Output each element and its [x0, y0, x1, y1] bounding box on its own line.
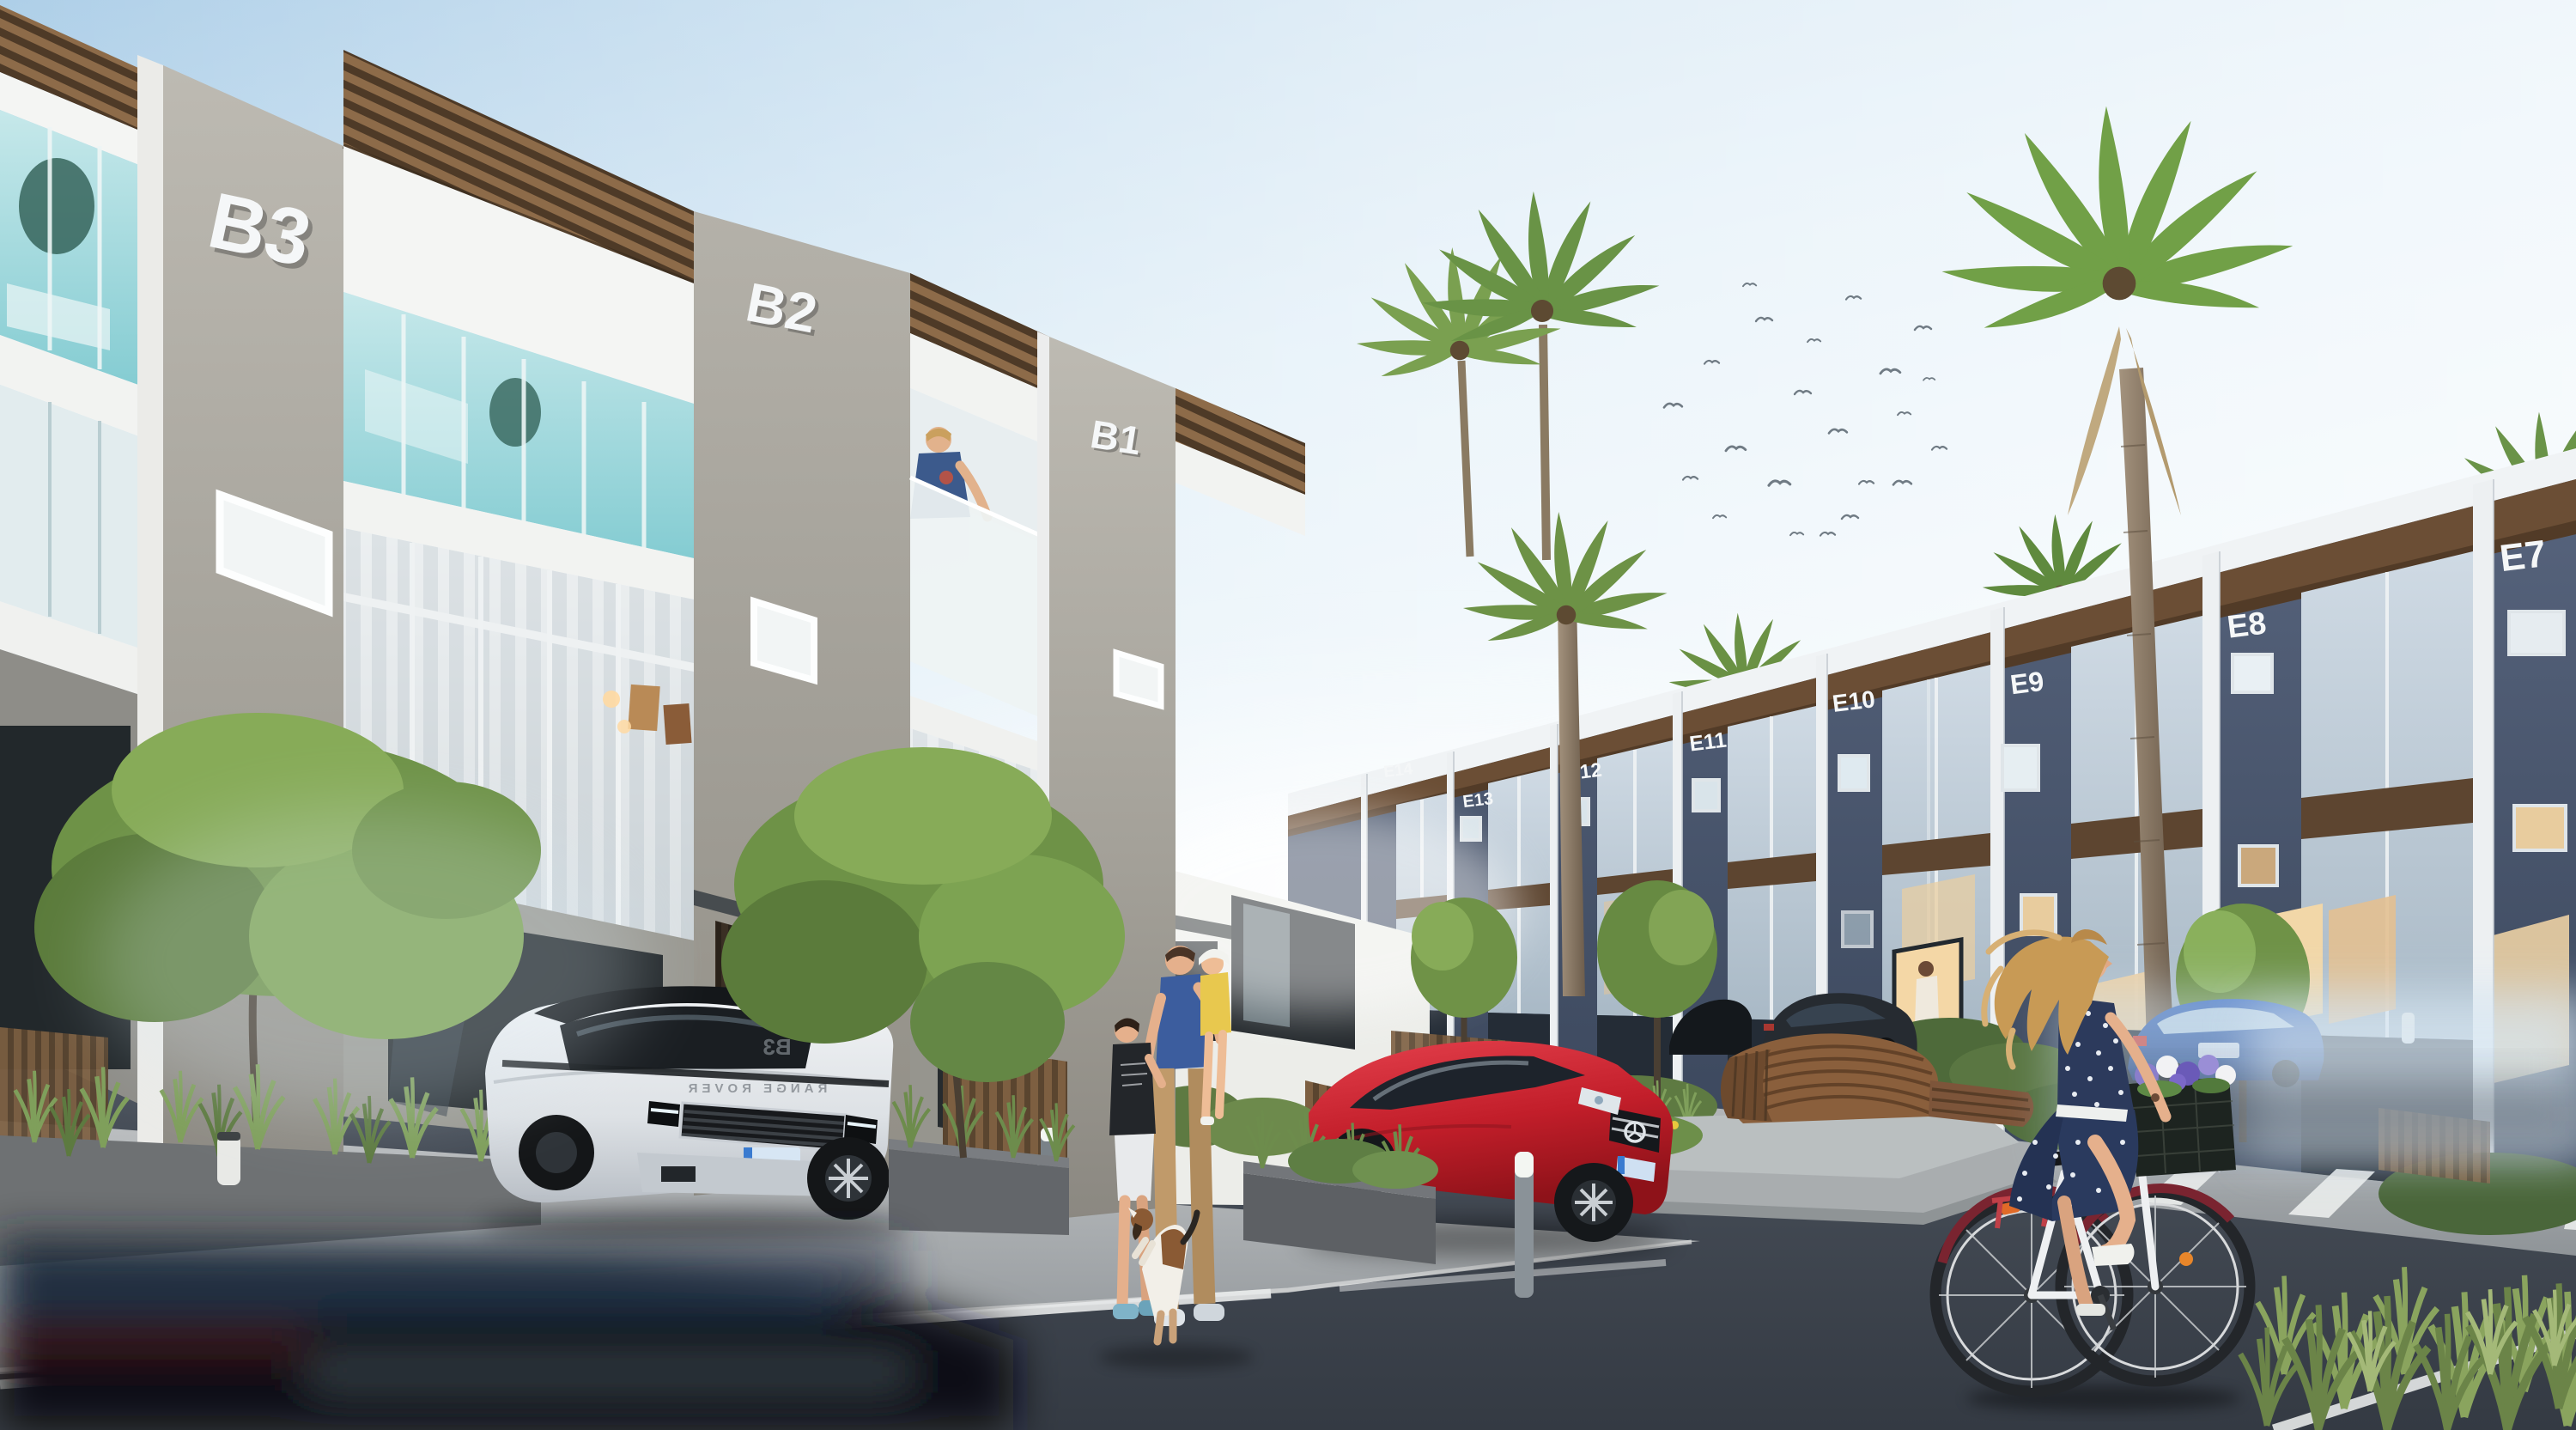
- interior-lamp: [603, 691, 620, 708]
- label-E13: E13: [1461, 789, 1494, 812]
- label-B1: B1: [1087, 411, 1144, 464]
- boy-sneaker: [1113, 1304, 1139, 1319]
- woman-shoe: [2092, 1244, 2134, 1266]
- father-sneaker: [1194, 1304, 1224, 1321]
- taillight: [1764, 1024, 1774, 1031]
- label-E9: E9: [2008, 666, 2045, 701]
- girl-leg: [1206, 1036, 1209, 1121]
- girl-shoe: [1200, 1117, 1214, 1125]
- hood-mirrored-text: RANGE ROVER: [684, 1081, 828, 1096]
- woman-shoe: [2076, 1304, 2105, 1316]
- bracelet: [2151, 1093, 2160, 1102]
- label-E10: E10: [1831, 685, 1876, 717]
- bollard-light: [217, 1135, 240, 1185]
- scene-canvas: E14 E13 E12 E11 E10 E9 E8 E7: [0, 0, 2576, 1430]
- foreground-blur-car: [0, 1238, 1013, 1430]
- wheel-reflector: [2179, 1252, 2193, 1266]
- architectural-rendering: E14 E13 E12 E11 E10 E9 E8 E7: [0, 0, 2576, 1430]
- interior-lamp: [617, 720, 631, 733]
- boy-leg: [1122, 1201, 1125, 1305]
- dog-patch: [1161, 1229, 1187, 1269]
- label-E14: E14: [1382, 760, 1414, 782]
- boy-shorts: [1115, 1134, 1154, 1201]
- girl-yellow-top: [1200, 972, 1231, 1036]
- interior-art-frame: [628, 685, 660, 731]
- label-E11: E11: [1688, 728, 1728, 757]
- label-E7: E7: [2498, 532, 2549, 580]
- interior-art-frame: [663, 703, 691, 745]
- label-E8: E8: [2226, 605, 2269, 644]
- light-bloom: [94, 807, 644, 1117]
- headlight-left: [647, 1101, 680, 1127]
- label-B2: B2: [741, 271, 822, 344]
